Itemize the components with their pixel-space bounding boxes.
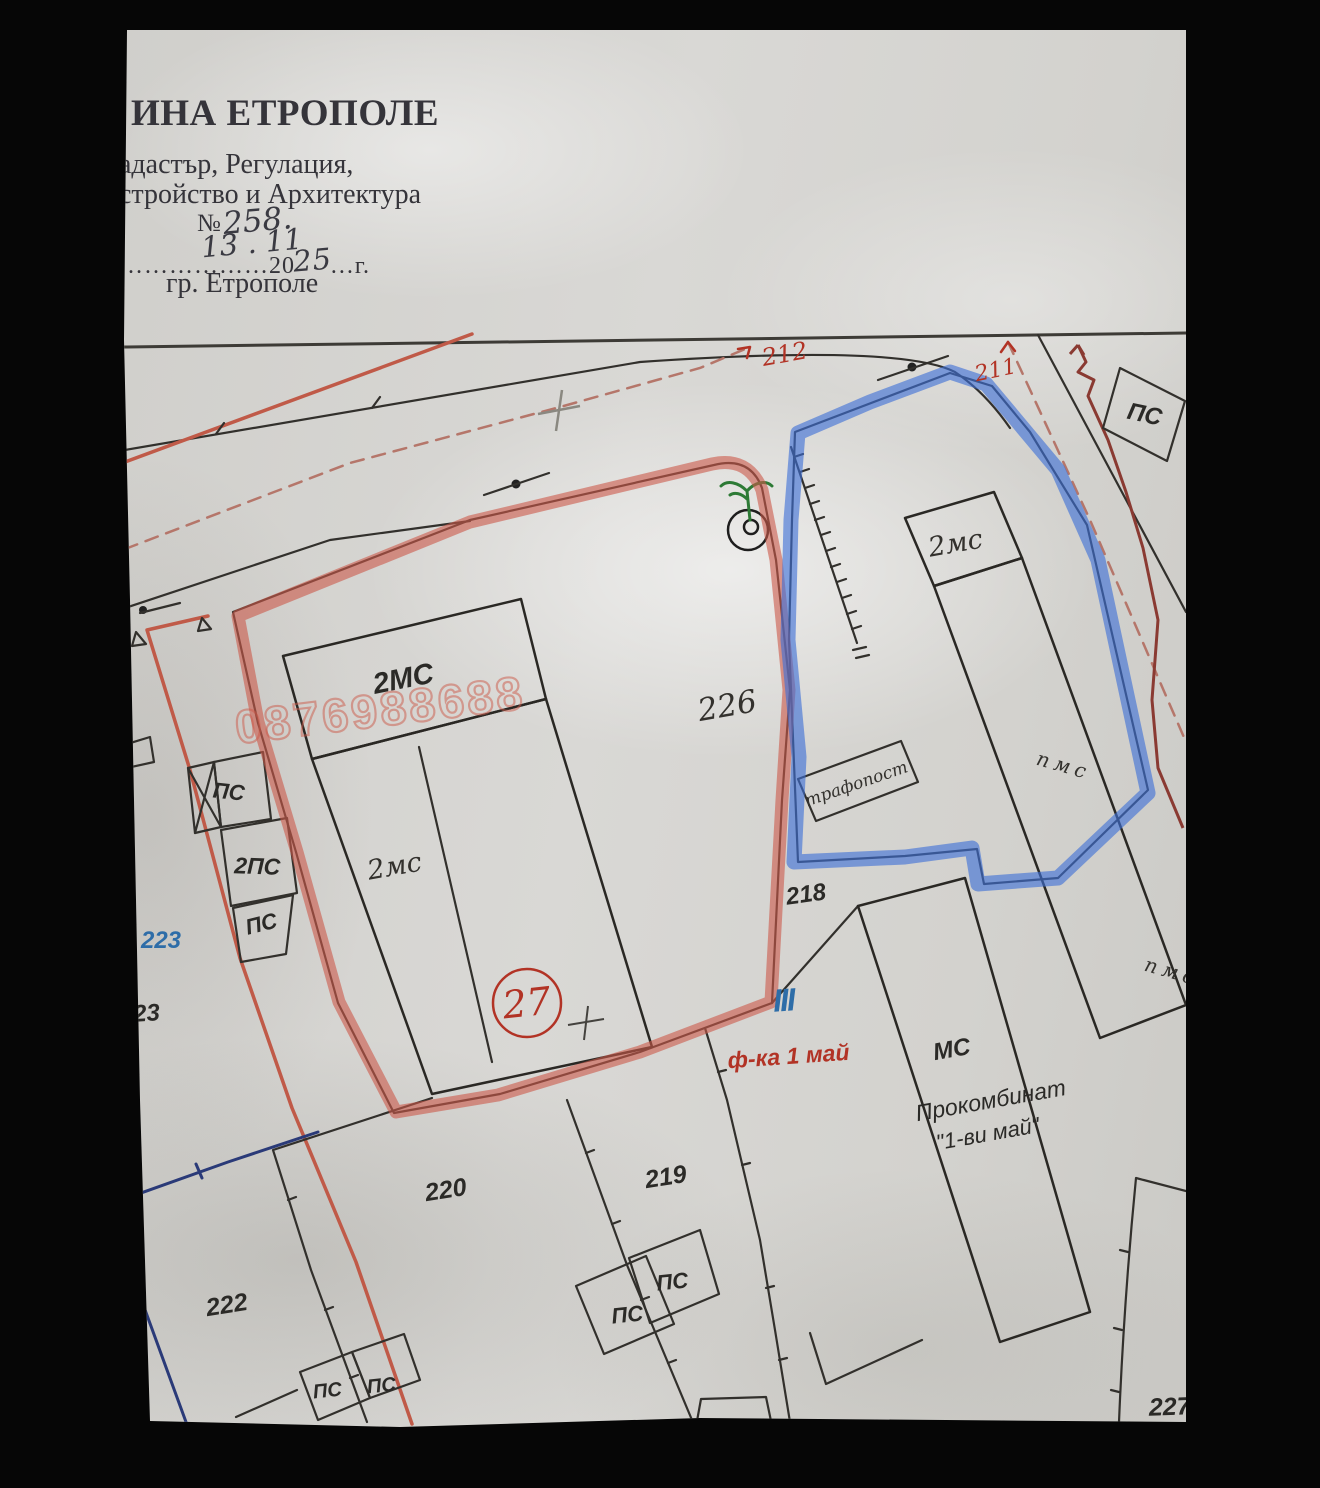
navy-boundary-line bbox=[127, 1132, 318, 1422]
gate-triangle-marks bbox=[132, 618, 211, 646]
tree-symbol-inner-circle bbox=[744, 520, 758, 534]
building-2mc-divider bbox=[419, 747, 492, 1062]
label-plot-227: 227 bbox=[1147, 1392, 1192, 1422]
photo-frame: ИНА ЕТРОПОЛЕ адастър, Регулация, стройст… bbox=[0, 0, 1320, 1488]
label-2mc-northeast: 2мс bbox=[925, 524, 985, 564]
label-ps-left-1: ПС bbox=[212, 777, 247, 805]
plot-227-ticks bbox=[1111, 1250, 1128, 1392]
label-plot-218: 218 bbox=[783, 878, 828, 911]
label-plot-220: 220 bbox=[422, 1173, 469, 1207]
label-ps-topright: ПС bbox=[1125, 398, 1165, 432]
label-ps-bottom-b: ПС bbox=[366, 1374, 398, 1399]
paper-sheet: ИНА ЕТРОПОЛЕ адастър, Регулация, стройст… bbox=[0, 0, 1320, 1488]
label-plot-27: 27 bbox=[499, 979, 554, 1028]
sheet-edge-line bbox=[124, 333, 1186, 347]
label-ps-bottom-a: ПС bbox=[312, 1379, 344, 1404]
blue-marker-outline bbox=[788, 372, 1148, 884]
boundary-222-220-ticks bbox=[288, 1197, 358, 1378]
label-plot-23: 23 bbox=[131, 999, 161, 1028]
grid-cross-icon bbox=[568, 1006, 604, 1040]
label-ps-diamond-a: ПС bbox=[610, 1300, 645, 1328]
label-plot-222: 222 bbox=[203, 1288, 250, 1322]
label-prokombinat: Прокомбинат bbox=[914, 1074, 1068, 1126]
label-mc: МС bbox=[931, 1033, 973, 1066]
plot-227-boundary bbox=[1119, 1178, 1186, 1422]
boundary-222-220 bbox=[273, 1098, 432, 1422]
label-street-212: 212 bbox=[759, 336, 810, 372]
street-axis-dashed-top bbox=[125, 347, 750, 549]
label-2ps-left: 2ПС bbox=[233, 852, 281, 880]
label-roman-quarter: III bbox=[772, 981, 798, 1019]
label-ps-diamond-b: ПС bbox=[655, 1267, 690, 1295]
label-plot-223: 223 bbox=[140, 927, 182, 954]
label-pms-2: пмс bbox=[1142, 952, 1202, 990]
plot-218-boundary bbox=[789, 373, 1148, 884]
cadastral-map-drawing: 212 211 ПС 2мс 226 пмс пмс трафопост 218… bbox=[0, 0, 1320, 1488]
boundary-219-factory bbox=[705, 1028, 790, 1422]
street-tick-marks bbox=[216, 397, 380, 434]
boundary-219-factory-ticks bbox=[718, 1070, 787, 1360]
building-edge-fragment-left bbox=[127, 737, 154, 768]
building-row-bottom-left bbox=[236, 1390, 297, 1417]
building-small-bottom-middle bbox=[697, 1397, 771, 1421]
label-pms-1: пмс bbox=[1034, 746, 1094, 784]
building-corner-bottom bbox=[810, 1333, 922, 1384]
label-trafopost: трафопост bbox=[802, 757, 910, 811]
label-2mc-lower: 2мс bbox=[364, 847, 424, 887]
label-ps-left-2: ПС bbox=[243, 907, 281, 939]
hatch-wall-ticks bbox=[794, 454, 861, 629]
label-plot-219: 219 bbox=[642, 1160, 689, 1194]
maroon-line-arrowhead bbox=[1070, 345, 1084, 355]
red-regulation-line-top bbox=[125, 334, 472, 462]
survey-point-bar bbox=[484, 473, 549, 495]
label-street-211: 211 bbox=[972, 354, 1019, 387]
label-factory-red: ф-ка 1 май bbox=[727, 1039, 851, 1073]
label-plot-226: 226 bbox=[694, 683, 760, 729]
